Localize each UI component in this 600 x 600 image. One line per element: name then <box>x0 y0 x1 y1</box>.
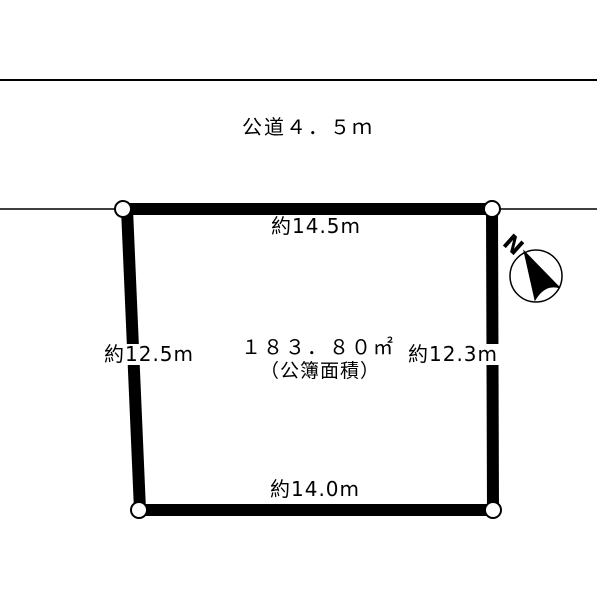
corner-marker-bottom-left <box>131 502 147 518</box>
plot-area-note: （公簿面積） <box>260 362 380 382</box>
compass: N <box>497 230 562 302</box>
dimension-left: 約12.5m <box>102 344 196 365</box>
land-plot-diagram: N 公道４．５ｍ 約14.5m 約12.5m 約12.3m １８３．８０㎡ （公… <box>0 0 600 600</box>
plot-area-value: １８３．８０㎡ <box>241 337 395 358</box>
corner-marker-bottom-right <box>485 502 501 518</box>
dimension-top: 約14.5m <box>271 216 361 237</box>
road-label: 公道４．５ｍ <box>242 117 374 138</box>
plot-drawing: N <box>0 0 600 600</box>
dimension-bottom: 約14.0m <box>270 479 360 500</box>
dimension-right: 約12.3m <box>405 344 501 365</box>
corner-marker-top-right <box>484 201 500 217</box>
corner-marker-top-left <box>115 201 131 217</box>
